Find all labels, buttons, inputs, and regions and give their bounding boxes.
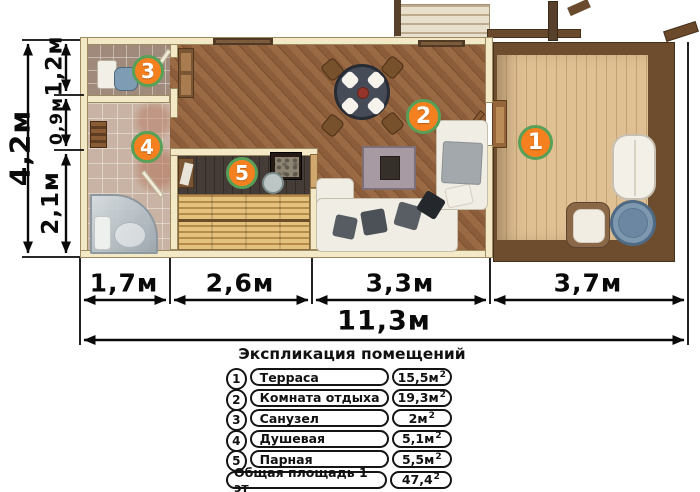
table-top-pattern xyxy=(618,208,648,238)
dim-left-seg1: 1,2м xyxy=(43,36,68,97)
legend-row-number: 3 xyxy=(226,409,247,431)
legend-row-number: 1 xyxy=(226,368,247,390)
dining-table xyxy=(334,64,390,120)
sofa-pillow xyxy=(360,208,388,236)
sauna-bench-edge xyxy=(178,219,310,222)
roof-bracket xyxy=(663,21,699,42)
sofa-pillow xyxy=(332,214,358,240)
sauna-benches xyxy=(178,194,310,250)
coffee-table xyxy=(362,146,416,190)
area-value: 5,1м xyxy=(402,431,434,446)
towel-shelf xyxy=(90,121,107,148)
legend-row: 4 Душевая 5,1м2 xyxy=(226,430,452,448)
sauna-window xyxy=(178,158,194,188)
legend-room-name: Душевая xyxy=(250,430,389,448)
legend-room-name: Терраса xyxy=(250,368,389,386)
area-sup: 2 xyxy=(440,370,446,380)
legend-room-area: 15,5м2 xyxy=(392,368,452,386)
wall-outer-right-upper xyxy=(485,37,493,103)
window-glass xyxy=(421,42,462,45)
legend-title: Экспликация помещений xyxy=(202,345,502,363)
window-glass xyxy=(216,40,270,43)
dim-bottom-seg1: 1,7м xyxy=(90,269,159,298)
area-sup: 2 xyxy=(440,390,446,400)
legend-row-total: Общая площадь 1 эт 47,42 xyxy=(226,471,452,489)
terrace-lounge xyxy=(612,134,656,200)
area-sup: 2 xyxy=(434,472,440,482)
window-top-left xyxy=(213,38,273,45)
legend-table: 1 Терраса 15,5м2 2 Комната отдыха 19,3м2… xyxy=(226,368,452,489)
terrace-armchair xyxy=(566,202,610,248)
wall-outer-left xyxy=(80,37,88,258)
room-badge-terrace: 1 xyxy=(518,125,553,160)
frame-inset-b xyxy=(181,75,191,95)
wall-left-column-b xyxy=(170,88,178,118)
legend-row: 3 Санузел 2м2 xyxy=(226,409,452,427)
wall-wc-shower xyxy=(87,95,170,103)
door-panel-inset xyxy=(496,107,504,143)
dim-bottom-total: 11,3м xyxy=(337,306,431,337)
armchair-cushion xyxy=(573,209,605,243)
coffee-table-tray xyxy=(380,156,400,180)
wall-left-column-c xyxy=(170,148,178,250)
area-value: 47,4 xyxy=(402,472,433,487)
legend-room-area: 5,1м2 xyxy=(392,430,452,448)
railing-post-left xyxy=(394,0,401,36)
legend-total-label: Общая площадь 1 эт xyxy=(226,471,387,489)
plate xyxy=(366,70,386,90)
legend-row: 1 Терраса 15,5м2 xyxy=(226,368,452,386)
legend-room-area: 5,5м2 xyxy=(392,450,452,468)
center-bowl xyxy=(357,87,369,99)
legend-row: 2 Комната отдыха 19,3м2 xyxy=(226,389,452,407)
shower-fixture xyxy=(94,216,111,250)
sauna-window-glass xyxy=(179,162,193,186)
window-top-right xyxy=(418,40,465,47)
legend-row-number: 2 xyxy=(226,389,247,411)
area-sup: 2 xyxy=(435,431,441,441)
dim-left-seg3: 2,1м xyxy=(38,171,64,235)
dim-left-total: 4,2м xyxy=(4,110,37,187)
area-value: 2м xyxy=(409,411,428,426)
room-badge-wc: 3 xyxy=(132,55,164,87)
hall-door-frames xyxy=(178,48,194,98)
railing-bar xyxy=(487,29,581,38)
shower-tray xyxy=(114,222,146,248)
terrace-round-table xyxy=(610,200,656,246)
area-value: 19,3м xyxy=(398,390,439,405)
area-sup: 2 xyxy=(429,411,435,421)
sofa-throw xyxy=(441,141,483,185)
sauna-bucket xyxy=(262,172,284,194)
plate xyxy=(340,70,360,90)
dim-bottom-seg4: 3,7м xyxy=(554,269,623,298)
lounge-seam xyxy=(634,140,636,196)
legend-room-name: Санузел xyxy=(250,409,389,427)
room-badge-sauna: 5 xyxy=(226,157,258,189)
terrace-entry-door xyxy=(492,100,507,148)
railing-angle xyxy=(567,0,591,16)
railing-post xyxy=(548,1,558,41)
room-badge-shower: 4 xyxy=(131,131,163,163)
area-sup: 2 xyxy=(435,452,441,462)
legend-room-area: 2м2 xyxy=(392,409,452,427)
dim-left-seg2: 0,9м xyxy=(47,97,67,145)
area-value: 5,5м xyxy=(402,452,434,467)
dim-bottom-seg2: 2,6м xyxy=(206,269,275,298)
legend-room-area: 19,3м2 xyxy=(392,389,452,407)
legend-room-name: Комната отдыха xyxy=(250,389,389,407)
legend-total-area: 47,42 xyxy=(390,471,452,489)
legend-row-number: 4 xyxy=(226,430,247,452)
frame-inset-a xyxy=(181,53,191,71)
room-badge-lounge: 2 xyxy=(406,99,441,134)
dim-bottom-seg3: 3,3м xyxy=(366,269,435,298)
area-value: 15,5м xyxy=(398,370,439,385)
plate xyxy=(340,96,360,116)
floor-plan-canvas: 1 2 3 4 5 xyxy=(0,0,700,492)
